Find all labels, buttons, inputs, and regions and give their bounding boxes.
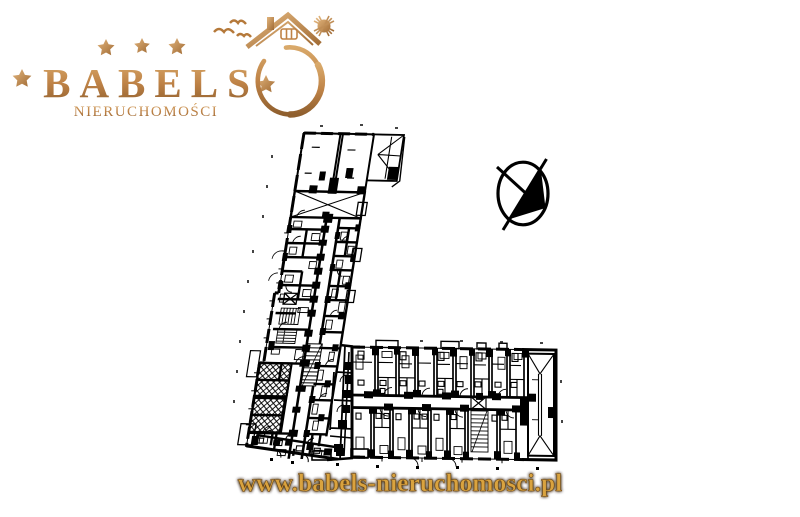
svg-text:www.babels-nieruchomosci.pl: www.babels-nieruchomosci.pl xyxy=(238,468,562,497)
svg-text:BABELS: BABELS xyxy=(43,60,259,106)
svg-text:NIERUCHOMOŚCI: NIERUCHOMOŚCI xyxy=(74,103,219,120)
